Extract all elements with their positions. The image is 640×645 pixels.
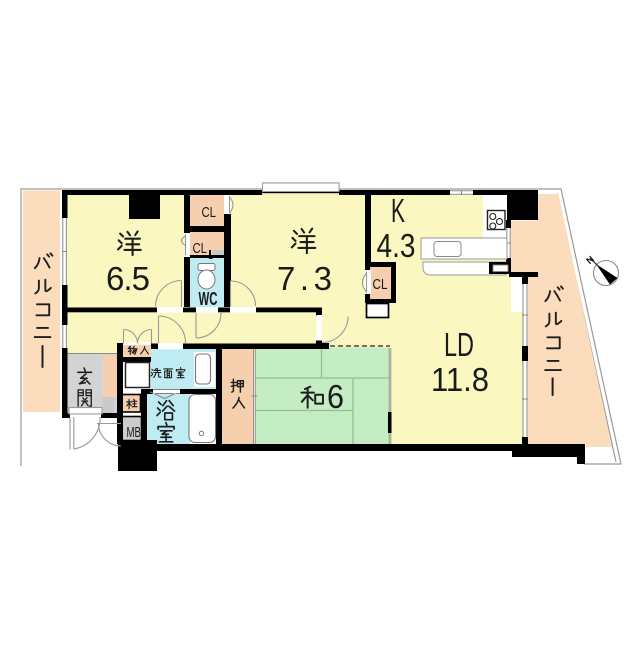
svg-text:6: 6 [327,378,344,415]
svg-text:CL: CL [193,240,208,257]
svg-text:K: K [391,192,405,229]
svg-text:CL: CL [202,204,217,221]
svg-text:4.3: 4.3 [377,227,416,264]
svg-text:CL: CL [373,276,388,293]
svg-text:LD: LD [444,326,474,363]
svg-text:6.5: 6.5 [106,260,150,297]
svg-text:MB: MB [127,424,142,441]
svg-text:7.3: 7.3 [277,260,332,297]
svg-text:11.8: 11.8 [431,361,489,398]
svg-text:WC: WC [199,288,218,309]
